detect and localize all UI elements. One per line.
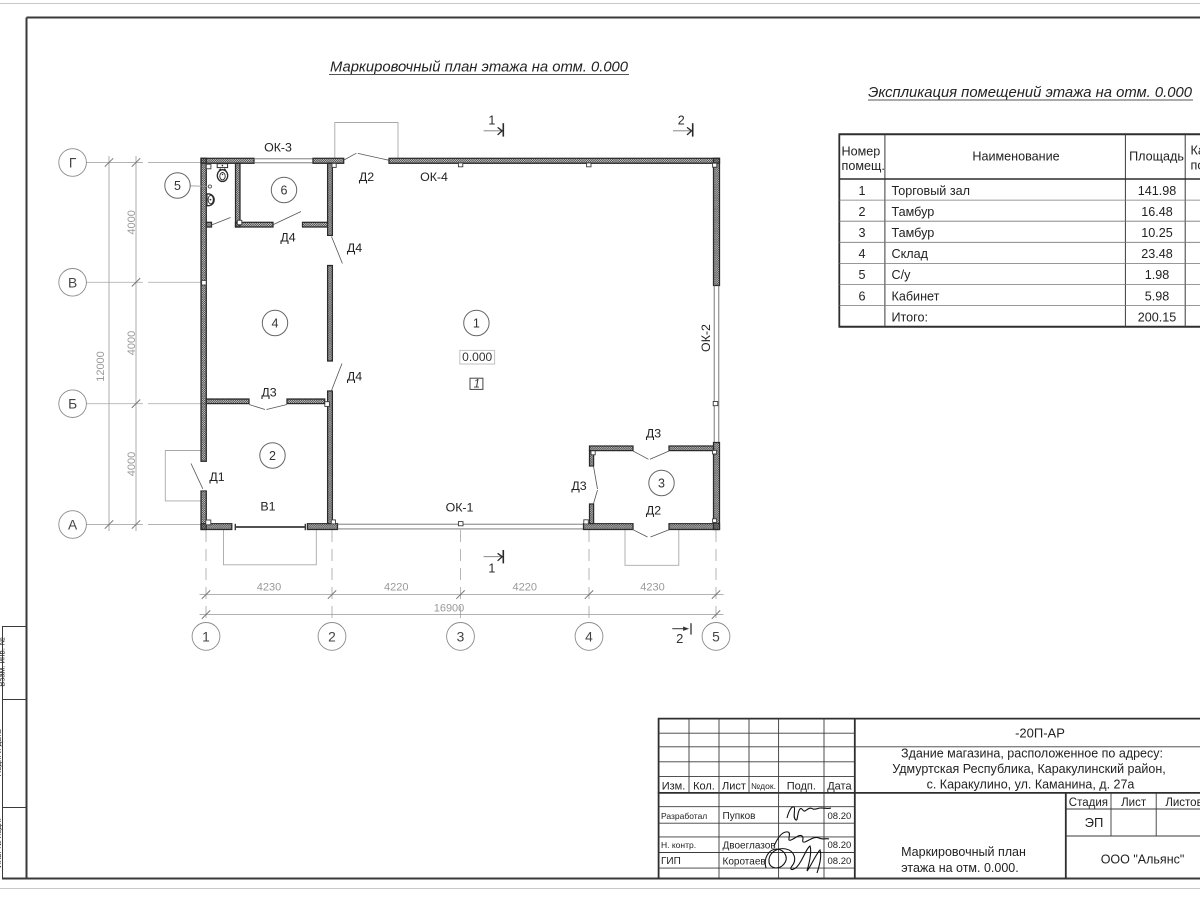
svg-text:-20П-АР: -20П-АР (1015, 726, 1065, 741)
svg-text:200.15: 200.15 (1138, 310, 1177, 324)
svg-text:А: А (68, 518, 78, 533)
svg-text:Д3: Д3 (646, 427, 661, 441)
svg-text:Д2: Д2 (359, 170, 374, 184)
svg-text:Лист: Лист (722, 781, 746, 793)
svg-text:Тамбур: Тамбур (892, 226, 935, 240)
svg-text:08.20: 08.20 (828, 856, 852, 867)
svg-text:Разработал: Разработал (661, 811, 707, 821)
svg-text:1.98: 1.98 (1145, 268, 1170, 282)
svg-text:ОК-3: ОК-3 (264, 140, 292, 154)
svg-text:Стадия: Стадия (1069, 797, 1108, 809)
svg-text:4: 4 (272, 317, 279, 331)
svg-text:Двоеглазов: Двоеглазов (723, 840, 776, 851)
svg-text:№док.: №док. (751, 781, 776, 791)
svg-text:Маркировочный план этажа на от: Маркировочный план этажа на отм. 0.000 (330, 60, 629, 76)
svg-text:3: 3 (858, 226, 865, 240)
svg-text:1: 1 (473, 317, 480, 331)
svg-text:ЭП: ЭП (1085, 815, 1104, 830)
svg-text:12000: 12000 (95, 351, 107, 382)
svg-text:6: 6 (858, 289, 865, 303)
svg-text:2: 2 (678, 113, 685, 127)
svg-text:23.48: 23.48 (1141, 247, 1173, 261)
svg-text:4000: 4000 (126, 452, 138, 476)
svg-text:08.20: 08.20 (828, 840, 852, 851)
svg-text:Дата: Дата (827, 781, 852, 793)
svg-text:0.000: 0.000 (462, 350, 492, 364)
svg-text:1: 1 (488, 562, 495, 576)
svg-text:ООО "Альянс": ООО "Альянс" (1101, 853, 1185, 867)
svg-text:ГИП: ГИП (661, 856, 681, 867)
svg-text:141.98: 141.98 (1138, 184, 1177, 198)
svg-text:Д4: Д4 (347, 241, 362, 255)
svg-text:2: 2 (328, 630, 336, 645)
svg-text:2: 2 (858, 205, 865, 219)
svg-text:1: 1 (202, 630, 210, 645)
svg-text:Кабинет: Кабинет (892, 289, 940, 303)
svg-text:Изм.: Изм. (662, 781, 686, 793)
svg-text:08.20: 08.20 (828, 811, 852, 822)
svg-text:Коротаев: Коротаев (723, 856, 766, 867)
svg-text:этажа на отм. 0.000.: этажа на отм. 0.000. (901, 861, 1018, 875)
svg-text:Д4: Д4 (347, 369, 362, 383)
svg-text:Подп.: Подп. (787, 781, 816, 793)
svg-text:4220: 4220 (384, 582, 408, 594)
svg-text:Б: Б (68, 397, 77, 412)
svg-text:Г: Г (69, 156, 77, 171)
svg-text:Взам. инв. №: Взам. инв. № (0, 637, 6, 687)
svg-text:10.25: 10.25 (1141, 226, 1173, 240)
svg-text:Торговый зал: Торговый зал (892, 184, 970, 198)
svg-text:4230: 4230 (257, 582, 281, 594)
svg-text:5: 5 (858, 268, 865, 282)
svg-text:Листов: Листов (1165, 797, 1200, 809)
svg-text:4230: 4230 (640, 582, 664, 594)
svg-text:Д4: Д4 (280, 231, 295, 245)
svg-text:Д1: Д1 (209, 470, 224, 484)
svg-text:Экспликация помещений этажа на: Экспликация помещений этажа на отм. 0.00… (868, 85, 1193, 101)
svg-text:1: 1 (474, 379, 480, 391)
svg-text:16900: 16900 (434, 603, 465, 615)
svg-text:с. Каракулино, ул. Каманина, д: с. Каракулино, ул. Каманина, д. 27а (927, 778, 1135, 792)
svg-text:4: 4 (858, 247, 865, 261)
svg-text:Наименование: Наименование (972, 150, 1059, 164)
svg-text:4000: 4000 (126, 210, 138, 234)
svg-text:Лист: Лист (1121, 797, 1147, 809)
svg-text:помещ.: помещ. (842, 159, 885, 173)
svg-text:5: 5 (174, 179, 181, 193)
svg-text:Н. контр.: Н. контр. (661, 840, 696, 850)
svg-text:В: В (68, 275, 77, 290)
svg-text:4220: 4220 (513, 582, 537, 594)
svg-text:Инв. № подл.: Инв. № подл. (0, 818, 3, 868)
svg-text:Д3: Д3 (261, 386, 276, 400)
svg-text:2: 2 (269, 449, 276, 463)
svg-text:1: 1 (858, 184, 865, 198)
svg-text:ОК-1: ОК-1 (446, 500, 474, 514)
svg-text:5: 5 (712, 630, 720, 645)
svg-text:ОК-4: ОК-4 (420, 170, 448, 184)
svg-text:Удмуртская Республика, Каракул: Удмуртская Республика, Каракулинский рай… (892, 762, 1166, 776)
svg-text:Пупков: Пупков (723, 811, 756, 822)
svg-text:Д2: Д2 (646, 504, 661, 518)
svg-text:2: 2 (676, 631, 683, 646)
svg-text:Номер: Номер (842, 145, 881, 159)
svg-text:5.98: 5.98 (1145, 289, 1170, 303)
svg-text:Маркировочный план: Маркировочный план (901, 845, 1026, 859)
svg-text:по: по (1191, 159, 1200, 173)
svg-text:3: 3 (658, 477, 665, 491)
svg-text:4: 4 (585, 630, 593, 645)
svg-text:Подп. и дата: Подп. и дата (0, 729, 3, 777)
svg-text:ОК-2: ОК-2 (699, 324, 713, 352)
svg-text:Тамбур: Тамбур (892, 205, 935, 219)
svg-text:Площадь: Площадь (1129, 150, 1184, 164)
svg-text:16.48: 16.48 (1141, 205, 1173, 219)
svg-text:6: 6 (281, 184, 288, 198)
svg-text:3: 3 (457, 630, 465, 645)
svg-text:Итого:: Итого: (892, 310, 929, 324)
svg-text:Склад: Склад (892, 247, 929, 261)
svg-text:4000: 4000 (126, 331, 138, 355)
svg-text:В1: В1 (260, 500, 275, 514)
svg-text:С/у: С/у (892, 268, 912, 282)
svg-text:1: 1 (488, 113, 495, 127)
svg-text:Кол.: Кол. (693, 781, 715, 793)
svg-text:Здание магазина, расположенное: Здание магазина, расположенное по адресу… (901, 747, 1163, 761)
svg-text:Д3: Д3 (571, 479, 586, 493)
svg-text:Ка: Ка (1191, 144, 1200, 158)
